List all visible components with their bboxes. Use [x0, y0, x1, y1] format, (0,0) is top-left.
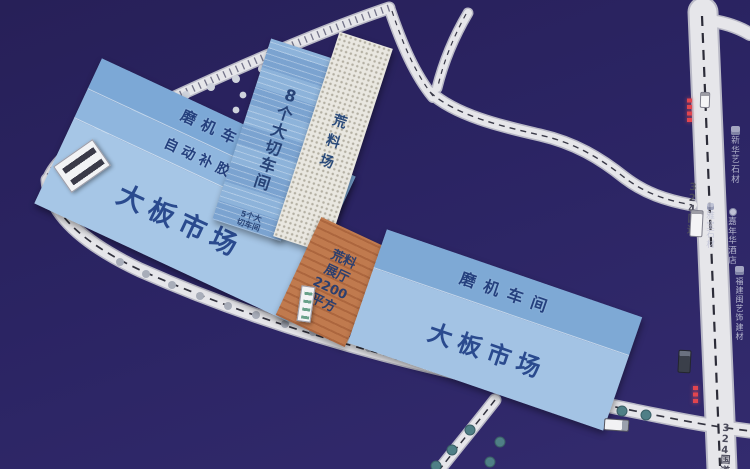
slab-market-right-label: 大板市场: [424, 313, 553, 386]
bus-icon: [689, 210, 703, 238]
poi-building-icon: [735, 266, 744, 275]
poi-circle-badge-icon: [729, 208, 737, 216]
poi-label: 新华艺石材: [731, 137, 740, 185]
poi-yabao-stone: 雅宝石材: [706, 203, 715, 251]
poi-label: 福建闽艺饰建材: [735, 277, 743, 341]
red-route-marker-icon: [693, 386, 698, 403]
poi-jianianhua-hotel: 嘉年华酒店: [728, 208, 737, 266]
raw-material-yard-label: 荒料场: [316, 110, 350, 174]
site-plan-map: 磨机车间 自动补胶线 大板市场 8个大切车间 5个大 切车间 荒料场 荒料 展厅…: [0, 0, 750, 469]
highway-324-label-bottom: 324国道: [720, 424, 730, 469]
poi-building-icon: [707, 203, 714, 210]
truck-icon: [604, 418, 630, 432]
car-icon: [700, 92, 711, 108]
poi-label: 嘉年华酒店: [728, 218, 737, 266]
poi-building-icon: [731, 126, 740, 135]
truck-icon: [677, 350, 691, 374]
poi-minyi-building-materials: 福建闽艺饰建材: [735, 266, 744, 341]
red-route-marker-icon: [687, 98, 692, 122]
poi-xinhuayi-stone: 新华艺石材: [731, 126, 740, 185]
poi-label: 雅宝石材: [706, 212, 715, 251]
